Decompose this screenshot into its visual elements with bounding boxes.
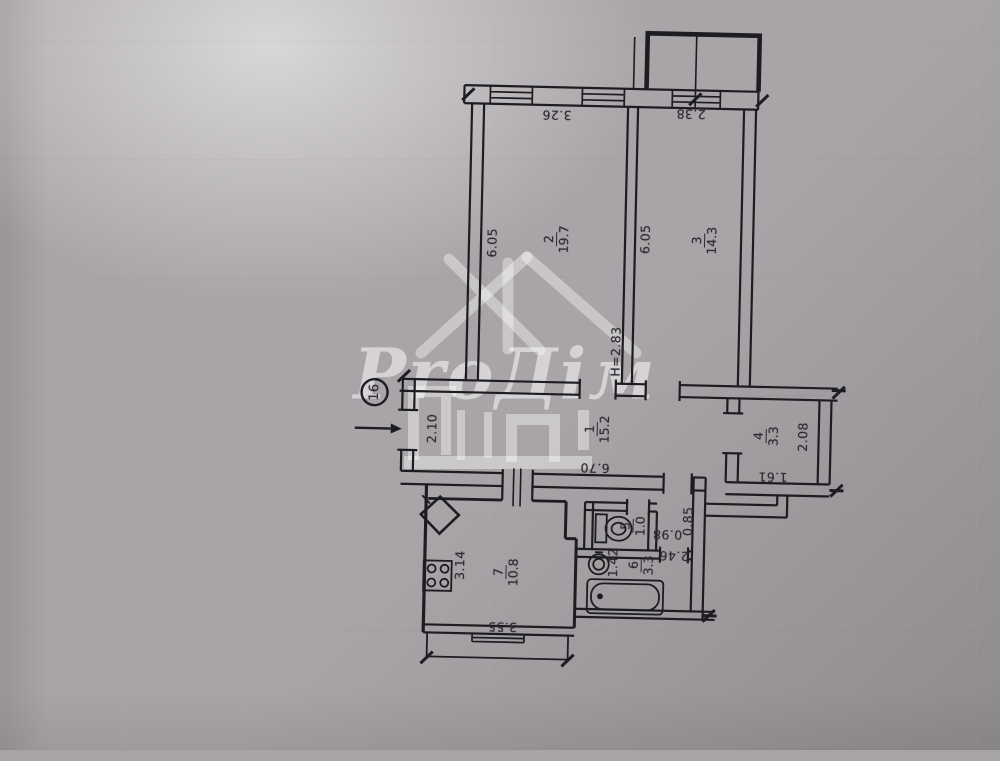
ceiling-height-note: H=2.83 xyxy=(607,326,623,376)
dim-kitchen-width: 3.14 xyxy=(452,550,468,580)
dim-top-right: 2.38 xyxy=(676,106,706,122)
room-label-7: 7 10.8 xyxy=(491,558,520,586)
room-6-number: 6 xyxy=(627,558,642,572)
dim-bath-length: 2.46 xyxy=(659,548,689,564)
room-4-number: 4 xyxy=(752,429,767,443)
dim-wc-width: 0.98 xyxy=(653,527,683,543)
dim-kitchen-length: 3.55 xyxy=(487,619,517,635)
kitchen-bay-outline xyxy=(427,632,569,659)
entrance-arrow-icon xyxy=(355,423,402,434)
room-2-number: 2 xyxy=(542,232,557,246)
room-label-2: 2 19.7 xyxy=(542,225,571,253)
room-label-3: 3 14.3 xyxy=(690,226,719,254)
room-5-area: 1.0 xyxy=(633,516,647,536)
dim-top-left: 3.26 xyxy=(542,107,572,123)
room-label-1: 1 15.2 xyxy=(582,415,611,443)
room-label-4: 4 3.3 xyxy=(751,426,779,447)
dim-r4-width: 1.61 xyxy=(758,469,788,485)
room-3-number: 3 xyxy=(690,233,705,247)
room-1-number: 1 xyxy=(583,422,598,436)
room-4-area: 3.3 xyxy=(766,426,780,446)
dim-niche: 0.85 xyxy=(680,506,696,536)
dim-hall-entry: 2.10 xyxy=(424,414,440,444)
dim-side-r2: 6.05 xyxy=(484,228,500,258)
room-3-area: 14.3 xyxy=(704,227,718,255)
stove-icon xyxy=(423,560,452,591)
room-2-area: 19.7 xyxy=(556,225,570,253)
kitchen-door-ticks xyxy=(513,468,521,506)
floor-plan-drawing: 3.26 2.38 6.05 6.05 H=2.83 2.10 6.70 2.0… xyxy=(0,0,1000,761)
dim-hall-length: 6.70 xyxy=(580,460,610,476)
room-label-5: 5 1.0 xyxy=(618,516,646,537)
dim-r4-height: 2.08 xyxy=(795,422,811,452)
room-6-area: 3.3 xyxy=(641,555,655,575)
entrance-number-badge: 16 xyxy=(367,383,382,401)
dim-bath-width: 1.42 xyxy=(605,548,621,578)
room-7-area: 10.8 xyxy=(506,558,520,586)
room-1-area: 15.2 xyxy=(597,415,611,443)
dim-side-r3: 6.05 xyxy=(637,224,653,254)
room-label-6: 6 3.3 xyxy=(626,555,654,576)
room-7-number: 7 xyxy=(491,565,506,579)
room-5-number: 5 xyxy=(618,519,633,533)
